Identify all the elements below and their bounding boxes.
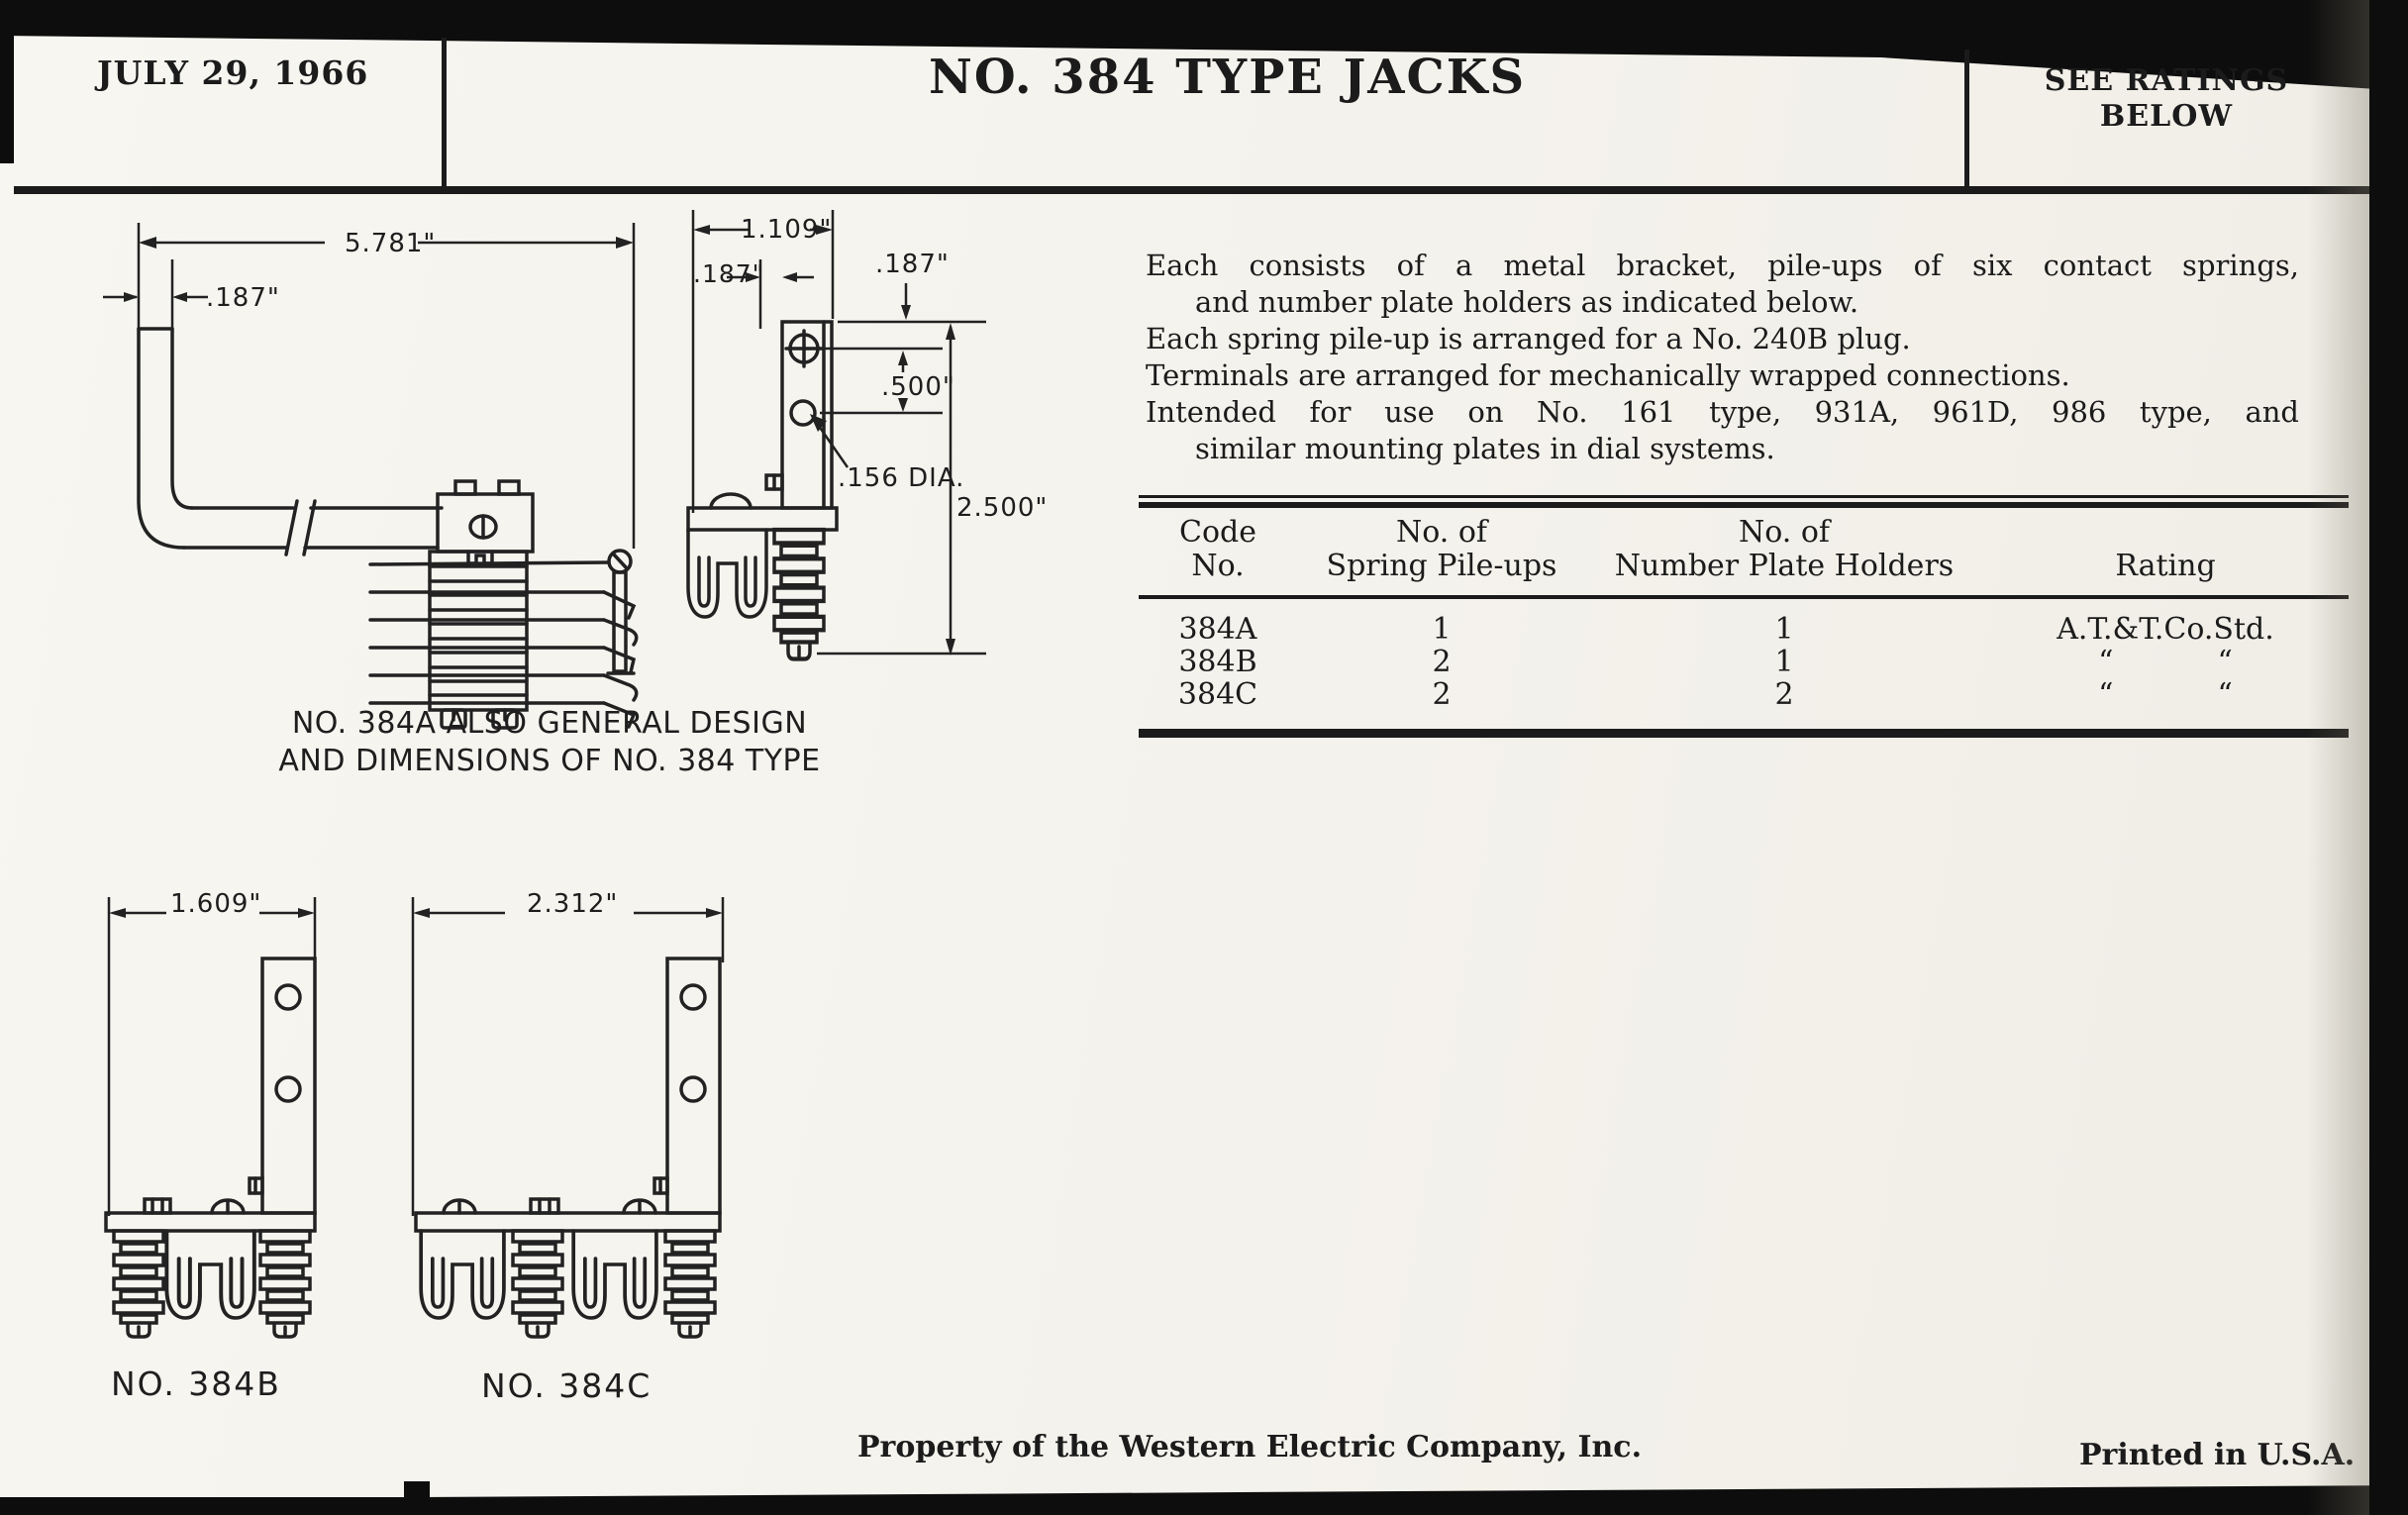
- ratings-note-line2: BELOW: [1972, 99, 2360, 135]
- dimension-lines: [413, 897, 723, 1216]
- cell-rating: A.T.&T.Co.Std.: [1982, 613, 2349, 646]
- paper-edge-shadow: [2307, 0, 2369, 1515]
- dim-label-187-side: .187": [206, 283, 280, 313]
- number-plate-holder-clip: [166, 1231, 253, 1318]
- col-header-line: No.: [1139, 550, 1297, 583]
- spring-pileup-stack: [665, 1231, 715, 1337]
- spring-pileup-stack: [513, 1231, 562, 1337]
- number-plate-holder-clip: [688, 530, 766, 617]
- cell-pileups: 2: [1297, 646, 1586, 678]
- dim-label-156dia: .156 DIA.: [838, 463, 964, 493]
- col-header-line: Code: [1139, 516, 1297, 550]
- dimension-lines: [109, 897, 315, 1216]
- table-row: 384A 1 1 A.T.&T.Co.Std.: [1139, 613, 2349, 646]
- col-header-pileups: No. of Spring Pile-ups: [1297, 516, 1586, 583]
- dim-label-1109: 1.109": [741, 215, 832, 245]
- table-row: 384C 2 2 ““: [1139, 678, 2349, 711]
- spring-pileup-stack: [260, 1231, 310, 1337]
- number-plate-holder-clip: [573, 1231, 656, 1318]
- description-paragraph: Each consists of a metal bracket, pile-u…: [1146, 248, 2299, 467]
- jack-384b-drawing: [59, 871, 327, 1366]
- ratings-note-line1: SEE RATINGS: [1972, 63, 2360, 99]
- ratings-table: Code No. No. of Spring Pile-ups No. of N…: [1139, 495, 2349, 738]
- col-header-line: No. of: [1297, 516, 1586, 550]
- page-title: NO. 384 TYPE JACKS: [929, 50, 1471, 105]
- bracket-plate: [250, 959, 315, 1213]
- bracket-plate: [654, 959, 720, 1213]
- col-header-rating: Rating: [1982, 516, 2349, 583]
- figure-label-384b: NO. 384B: [111, 1364, 281, 1403]
- bracket-plate: [766, 322, 832, 508]
- description-line: Each spring pile-up is arranged for a No…: [1146, 321, 2299, 357]
- table-bottom-rule: [1139, 729, 2349, 738]
- cell-pileups: 1: [1297, 613, 1586, 646]
- table-row: 384B 2 1 ““: [1139, 646, 2349, 678]
- jack-384a-end-view-drawing: [653, 149, 1069, 703]
- document-date: JULY 29, 1966: [97, 53, 368, 92]
- caption-line2: AND DIMENSIONS OF NO. 384 TYPE: [269, 743, 830, 780]
- contact-springs: [370, 562, 637, 727]
- number-plate-holder-clip: [421, 1231, 504, 1318]
- dim-label-187-top: .187": [875, 250, 950, 279]
- scanned-spec-sheet: JULY 29, 1966 NO. 384 TYPE JACKS SEE RAT…: [0, 0, 2408, 1515]
- mounting-base: [416, 1199, 720, 1231]
- cell-code: 384C: [1139, 678, 1297, 711]
- ratings-note: SEE RATINGS BELOW: [1972, 63, 2360, 135]
- col-header-line: Number Plate Holders: [1586, 550, 1982, 583]
- col-header-line: No. of: [1586, 516, 1982, 550]
- cell-code: 384A: [1139, 613, 1297, 646]
- col-header-code: Code No.: [1139, 516, 1297, 583]
- cell-holders: 2: [1586, 678, 1982, 711]
- cell-code: 384B: [1139, 646, 1297, 678]
- table-body: 384A 1 1 A.T.&T.Co.Std. 384B 2 1 ““ 384C…: [1139, 599, 2349, 711]
- property-note: Property of the Western Electric Company…: [857, 1430, 1501, 1464]
- dim-label-500: .500": [881, 372, 955, 402]
- ditto-mark: “: [2098, 645, 2113, 679]
- mounting-base: [106, 1199, 315, 1231]
- cell-holders: 1: [1586, 613, 1982, 646]
- mounting-foot: [688, 494, 837, 530]
- header-divider-right: [1964, 50, 1969, 190]
- cell-holders: 1: [1586, 646, 1982, 678]
- description-line: and number plate holders as indicated be…: [1146, 284, 2299, 321]
- table-header-row: Code No. No. of Spring Pile-ups No. of N…: [1139, 508, 2349, 583]
- description-line: Each consists of a metal bracket, pile-u…: [1146, 248, 2299, 284]
- description-line: Terminals are arranged for mechanically …: [1146, 357, 2299, 394]
- drawing-caption: NO. 384A ALSO GENERAL DESIGN AND DIMENSI…: [269, 705, 830, 780]
- cell-pileups: 2: [1297, 678, 1586, 711]
- cell-rating-ditto: ““: [1982, 678, 2349, 711]
- bracket-arm: [139, 329, 442, 555]
- dim-label-5781: 5.781": [345, 229, 436, 258]
- jack-384c-drawing: [386, 871, 733, 1366]
- dim-label-187-left: .187": [693, 259, 764, 288]
- dimension-lines: [103, 223, 634, 549]
- spring-pileup-stack: [774, 530, 824, 659]
- spring-pileup-stack: [114, 1231, 163, 1337]
- figure-label-384c: NO. 384C: [481, 1366, 652, 1405]
- dim-label-1609: 1.609": [170, 889, 261, 919]
- table-top-rule-thin: [1139, 495, 2349, 498]
- ditto-mark: “: [2218, 677, 2233, 712]
- cell-rating-ditto: ““: [1982, 646, 2349, 678]
- col-header-holders: No. of Number Plate Holders: [1586, 516, 1982, 583]
- description-line: similar mounting plates in dial systems.: [1146, 431, 2299, 467]
- col-header-line: Rating: [1982, 550, 2349, 583]
- ditto-mark: “: [2218, 645, 2233, 679]
- description-line: Intended for use on No. 161 type, 931A, …: [1146, 394, 2299, 431]
- dim-label-2312: 2.312": [527, 889, 618, 919]
- ditto-mark: “: [2098, 677, 2113, 712]
- col-header-line: Spring Pile-ups: [1297, 550, 1586, 583]
- dim-label-2500: 2.500": [956, 493, 1048, 523]
- caption-line1: NO. 384A ALSO GENERAL DESIGN: [269, 705, 830, 743]
